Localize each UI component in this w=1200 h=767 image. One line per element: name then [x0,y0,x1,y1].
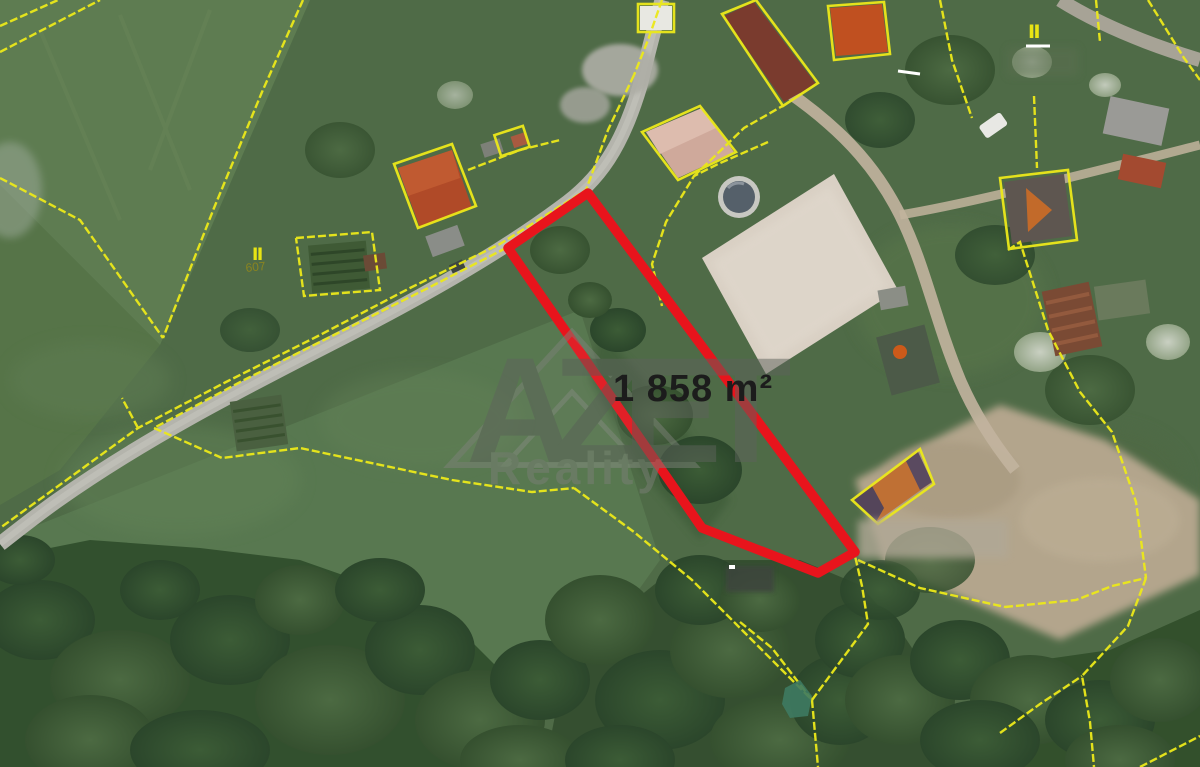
blurred-label-dark [726,566,774,592]
landuse-symbol-left: Ⅱ [252,245,263,264]
landuse-symbol-topright: Ⅱ [1028,22,1041,43]
area-label: 1 858 m² [613,368,773,410]
blurred-label-light [858,520,1008,558]
blurred-label-top [1008,48,1078,76]
house-orange-top [830,4,888,56]
house-right [1004,174,1072,244]
aerial-map: AZET Reality 1 858 m² 607 Ⅱ Ⅱ [0,0,1200,767]
watermark: AZET Reality [450,326,791,494]
map-canvas: AZET Reality 1 858 m² 607 Ⅱ Ⅱ [0,0,1200,767]
shed-green-roof [1094,280,1150,321]
pool [718,176,760,218]
watermark-sub: Reality [488,442,667,494]
